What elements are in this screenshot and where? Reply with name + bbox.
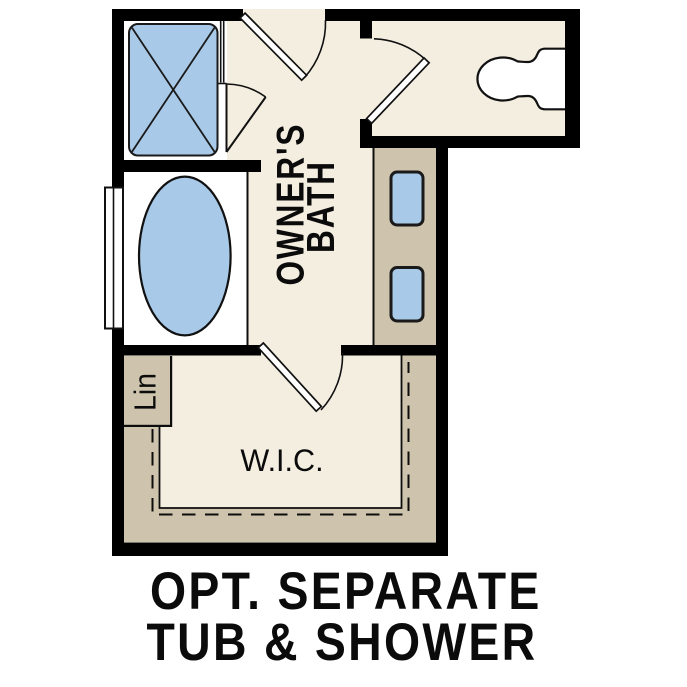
- svg-text:BATH: BATH: [299, 160, 343, 253]
- svg-text:Lin: Lin: [128, 373, 162, 411]
- svg-text:TUB & SHOWER: TUB & SHOWER: [147, 612, 538, 672]
- svg-text:W.I.C.: W.I.C.: [240, 443, 323, 479]
